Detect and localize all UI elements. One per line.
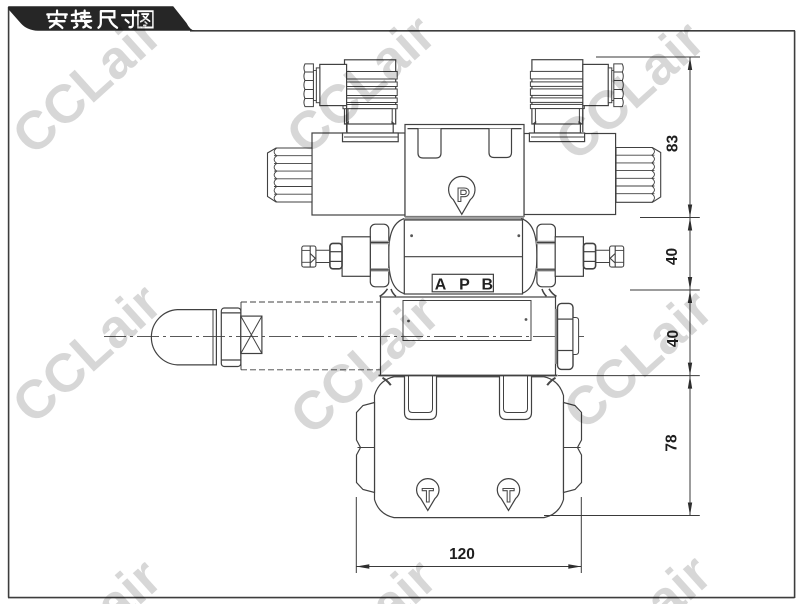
svg-text:CCLair: CCLair xyxy=(552,278,724,441)
svg-text:CCLair: CCLair xyxy=(1,3,173,166)
svg-text:CCLair: CCLair xyxy=(544,9,716,172)
svg-text:CCLair: CCLair xyxy=(1,272,173,435)
svg-text:CCLair: CCLair xyxy=(275,3,447,166)
svg-text:CCLair: CCLair xyxy=(276,547,448,604)
svg-text:CCLair: CCLair xyxy=(1,547,173,604)
svg-text:CCLair: CCLair xyxy=(551,543,723,604)
svg-text:CCLair: CCLair xyxy=(279,283,451,446)
